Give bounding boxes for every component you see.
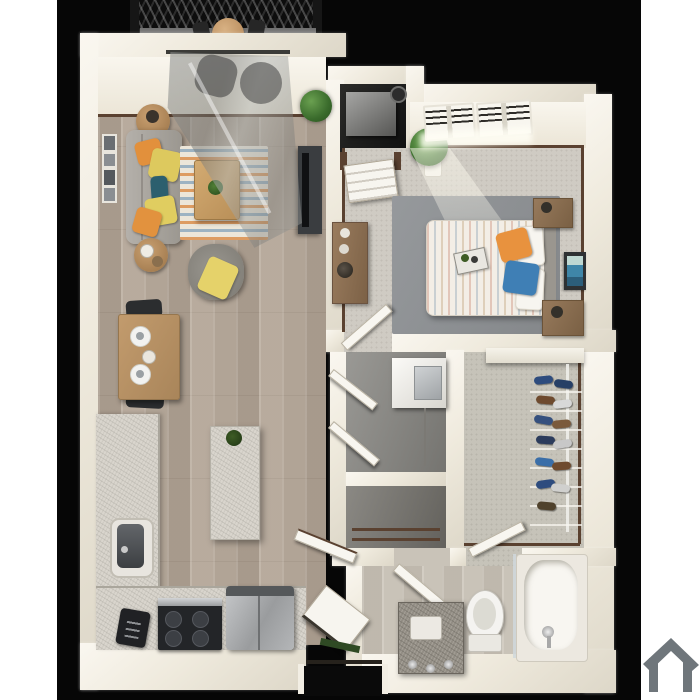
range-handle	[158, 598, 222, 606]
dining-plate-1-food	[136, 332, 144, 340]
refrigerator-door-divider	[258, 596, 260, 650]
glass-reflection-chair-2	[240, 62, 282, 104]
tray-dish	[471, 256, 478, 263]
front-door-frame-right	[394, 152, 401, 170]
closet-top-shelf	[486, 348, 584, 363]
washer-hose	[424, 408, 426, 466]
shoe-pair-10	[552, 461, 572, 470]
toilet-tank	[468, 634, 502, 652]
dresser-decor-vase-2	[339, 244, 349, 254]
wall-right-bedroom	[584, 94, 612, 352]
linen-shelf-edge-upper	[352, 528, 440, 531]
bed-pillow-blue	[502, 260, 540, 296]
patio-door-jamb-left	[298, 664, 304, 694]
bath-door-gap-floor	[394, 548, 450, 566]
wall-bedroom-top	[410, 84, 596, 102]
porch-pipe-cap	[390, 86, 407, 103]
shoe-pair-13	[537, 501, 557, 511]
kitchen-faucet	[121, 546, 128, 553]
wall-closet-divider-vertical	[446, 350, 464, 556]
patio-door-threshold	[306, 660, 382, 664]
burner-1	[165, 611, 182, 628]
nightstand-south-lamp	[551, 306, 563, 318]
dining-plate-2-food	[136, 370, 144, 378]
nightstand-north	[533, 198, 573, 228]
vanity-faucet-1	[408, 660, 417, 669]
dresser-decor-bowl	[337, 262, 353, 278]
wall-frame-1	[102, 134, 117, 152]
shower-glass-panel	[513, 554, 516, 658]
patio-door-jamb-right	[382, 664, 388, 694]
living-corner-plant	[300, 90, 332, 122]
nightstand-south	[542, 300, 584, 336]
dresser-decor-vase-1	[340, 228, 350, 238]
tv-screen	[302, 153, 309, 227]
patio-doorway-opening	[302, 666, 384, 696]
vanity-faucet-2	[426, 664, 435, 673]
side-table-bottom-basket	[152, 256, 163, 267]
linen-shelf-edge-lower	[352, 538, 440, 541]
burner-4	[192, 630, 209, 647]
page: { "scene": { "title": "3D one-bedroom ap…	[0, 0, 700, 700]
wall-right-lower	[584, 348, 614, 693]
wall-laundry-linen-divider	[346, 472, 446, 486]
water-heater-box	[346, 92, 396, 136]
wall-frame-4	[102, 186, 117, 203]
wall-frame-2	[102, 152, 117, 168]
side-table-top-vase	[146, 110, 159, 123]
side-table-bottom-vase	[140, 244, 154, 258]
vanity-sink	[410, 616, 442, 640]
burner-2	[192, 611, 209, 628]
front-door	[344, 159, 399, 204]
home-logo	[640, 636, 700, 694]
nightstand-north-lamp	[541, 202, 552, 213]
toilet-seat	[473, 598, 496, 630]
tub-spout	[547, 636, 551, 648]
vanity-faucet-3	[444, 660, 453, 669]
wall-bottom-left-outer	[80, 643, 306, 690]
refrigerator-top-band	[226, 586, 294, 596]
wall-frame-3	[102, 168, 117, 187]
kitchen-sink-basin	[117, 524, 144, 568]
washer-door	[414, 366, 442, 400]
burner-3	[165, 630, 182, 647]
bedroom-wall-art-canvas	[567, 256, 583, 286]
island-fruit-bowl	[226, 430, 242, 446]
dining-centerpiece	[142, 350, 156, 364]
